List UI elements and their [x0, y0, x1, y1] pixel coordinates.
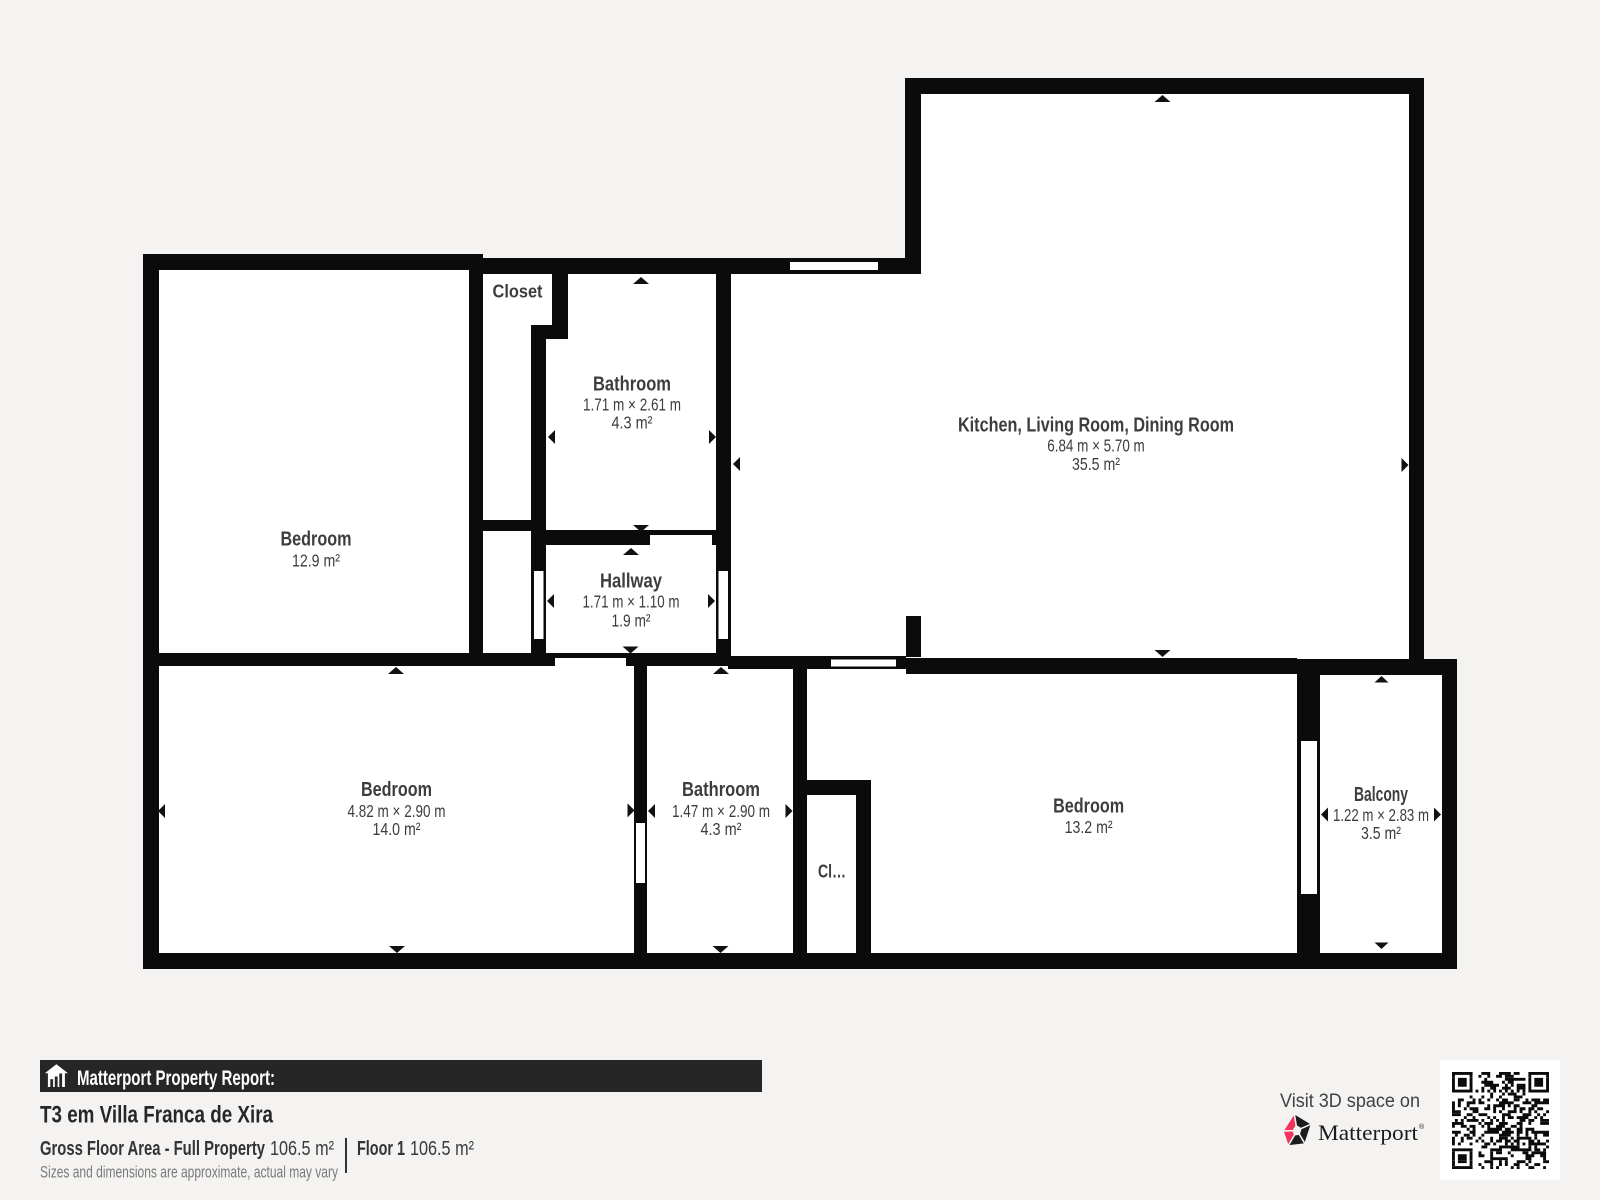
- svg-text:1.71 m × 1.10 m: 1.71 m × 1.10 m: [583, 591, 680, 611]
- svg-text:12.9 m²: 12.9 m²: [292, 550, 340, 570]
- svg-text:1.71 m × 2.61 m: 1.71 m × 2.61 m: [583, 394, 681, 414]
- svg-text:Bedroom: Bedroom: [1053, 795, 1124, 818]
- svg-text:Kitchen, Living Room, Dining R: Kitchen, Living Room, Dining Room: [958, 413, 1234, 436]
- svg-text:Visit 3D space on: Visit 3D space on: [1280, 1091, 1420, 1112]
- svg-text:3.5 m²: 3.5 m²: [1361, 823, 1401, 843]
- svg-text:4.3 m²: 4.3 m²: [701, 819, 742, 839]
- svg-text:Bedroom: Bedroom: [281, 527, 352, 550]
- svg-text:Bathroom: Bathroom: [682, 778, 760, 801]
- svg-text:1.47 m × 2.90 m: 1.47 m × 2.90 m: [672, 801, 770, 821]
- svg-text:Matterport Property Report:: Matterport Property Report:: [77, 1067, 275, 1090]
- svg-text:Cl…: Cl…: [818, 861, 846, 882]
- svg-text:106.5 m²: 106.5 m²: [410, 1137, 474, 1160]
- svg-text:1.22 m × 2.83 m: 1.22 m × 2.83 m: [1333, 805, 1429, 825]
- svg-text:Bathroom: Bathroom: [593, 372, 671, 395]
- svg-text:Matterport: Matterport: [1318, 1120, 1418, 1145]
- svg-text:®: ®: [1419, 1123, 1425, 1131]
- svg-text:13.2 m²: 13.2 m²: [1065, 817, 1113, 837]
- svg-text:35.5 m²: 35.5 m²: [1072, 454, 1120, 474]
- svg-text:Floor 1: Floor 1: [357, 1137, 405, 1160]
- svg-text:1.9 m²: 1.9 m²: [612, 610, 651, 630]
- svg-text:4.3 m²: 4.3 m²: [612, 412, 653, 432]
- svg-text:14.0 m²: 14.0 m²: [373, 819, 421, 839]
- svg-text:Balcony: Balcony: [1354, 783, 1408, 806]
- svg-text:6.84 m × 5.70 m: 6.84 m × 5.70 m: [1047, 435, 1145, 455]
- svg-text:Sizes and dimensions are appro: Sizes and dimensions are approximate, ac…: [40, 1163, 339, 1181]
- svg-text:4.82 m × 2.90 m: 4.82 m × 2.90 m: [348, 801, 446, 821]
- svg-text:106.5 m²: 106.5 m²: [270, 1137, 334, 1160]
- svg-text:Closet: Closet: [493, 281, 543, 302]
- svg-text:Bedroom: Bedroom: [361, 778, 432, 801]
- svg-text:Hallway: Hallway: [600, 569, 662, 592]
- svg-text:T3 em Villa Franca de Xira: T3 em Villa Franca de Xira: [40, 1102, 274, 1129]
- svg-text:Gross Floor Area - Full Proper: Gross Floor Area - Full Property: [40, 1137, 265, 1160]
